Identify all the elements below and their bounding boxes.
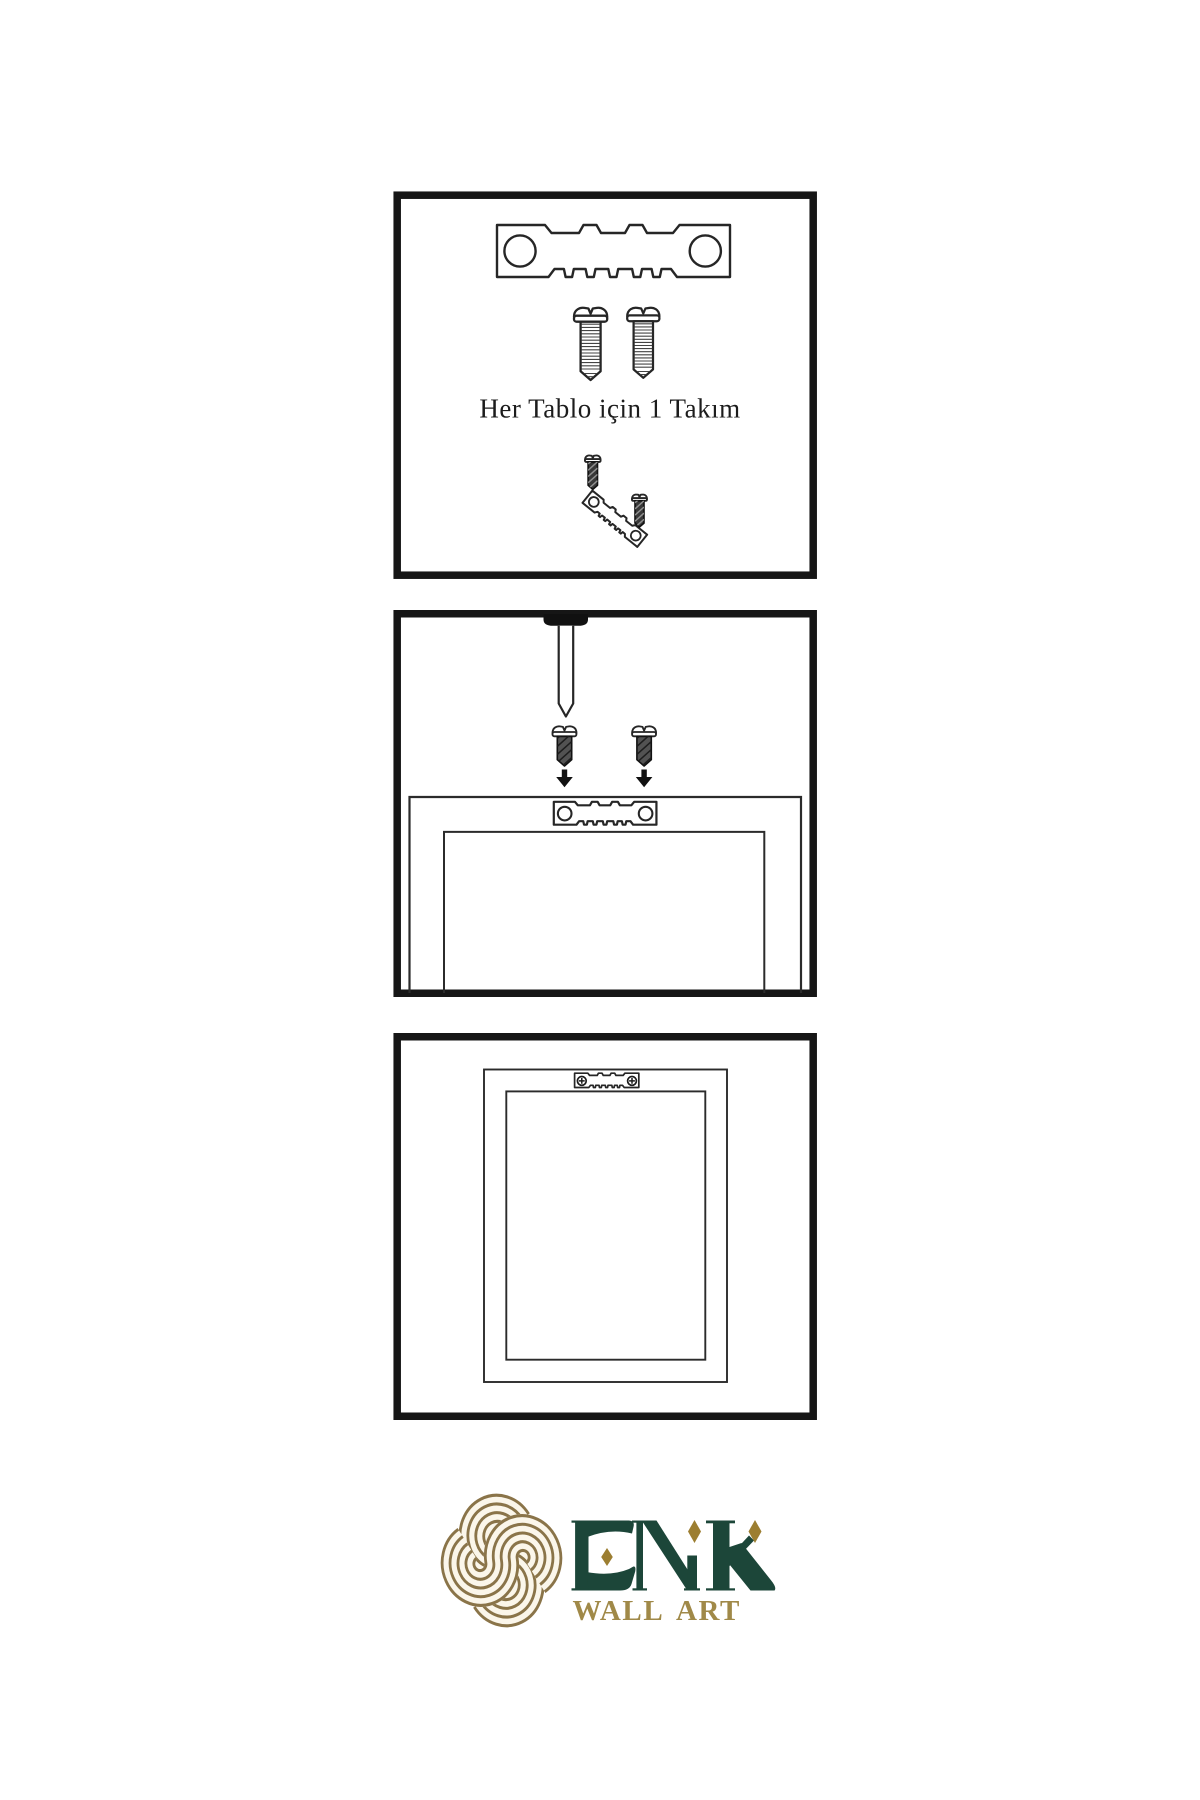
svg-text:Her Tablo için 1 Takım: Her Tablo için 1 Takım xyxy=(479,394,740,424)
svg-text:WALL ART: WALL ART xyxy=(573,1595,741,1627)
